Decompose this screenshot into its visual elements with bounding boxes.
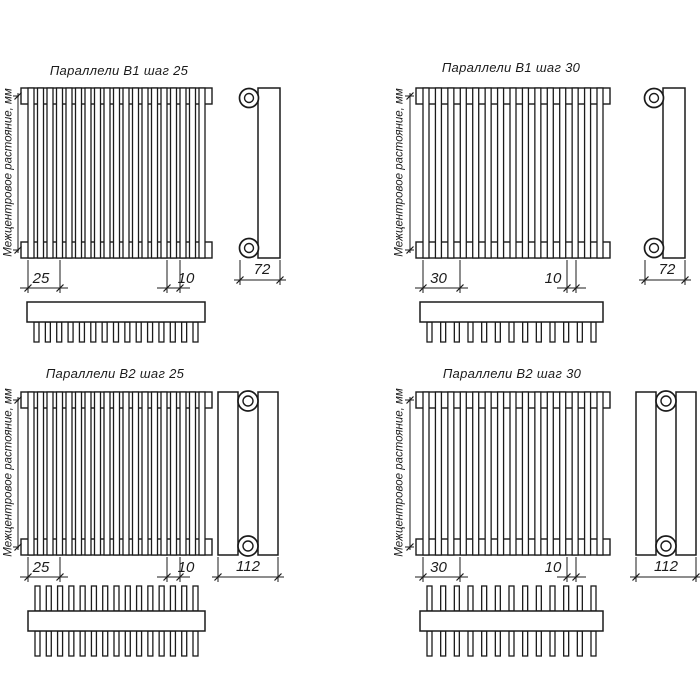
depth-dimension: 72 [639, 260, 691, 285]
quadrant-b2-step-25: 2510112 [13, 391, 284, 656]
slat-width-dimension: 10 [157, 557, 195, 582]
dim-label-slat-width: 10 [545, 270, 562, 287]
top-view [28, 586, 205, 656]
dim-label-depth: 112 [236, 558, 261, 575]
dim-label-depth: 112 [654, 558, 679, 575]
center-distance-label-b1-step-25: Межцентровое растояние, мм [2, 87, 17, 259]
top-view [420, 302, 603, 342]
step-dimension: 25 [20, 260, 68, 293]
top-view [420, 586, 603, 656]
radiator-drawings-svg: 25107230107225101123010112 [0, 0, 700, 700]
center-distance-label-b2-step-25: Межцентровое растояние, мм [2, 387, 17, 559]
dim-label-step: 30 [430, 559, 447, 576]
slat-width-dimension: 10 [545, 557, 586, 582]
dim-label-slat-width: 10 [545, 559, 562, 576]
side-view [636, 391, 696, 556]
step-dimension: 25 [20, 557, 68, 582]
dim-label-step: 25 [32, 270, 50, 287]
depth-dimension: 112 [630, 557, 700, 582]
quadrant-title-b2-step-25: Параллели В2 шаг 25 [27, 366, 203, 381]
dim-label-step: 30 [430, 270, 447, 287]
depth-dimension: 72 [234, 260, 286, 285]
front-view [416, 392, 610, 555]
quadrant-title-b2-step-30: Параллели В2 шаг 30 [424, 366, 600, 381]
quadrant-b1-step-25: 251072 [13, 88, 286, 342]
front-view [21, 88, 212, 258]
dim-label-step: 25 [32, 559, 50, 576]
quadrant-b1-step-30: 301072 [405, 88, 691, 342]
dim-label-slat-width: 10 [178, 559, 195, 576]
top-view [27, 302, 205, 342]
slat-width-dimension: 10 [157, 260, 195, 293]
dim-label-slat-width: 10 [178, 270, 195, 287]
side-view [218, 391, 278, 556]
quadrant-title-b1-step-30: Параллели В1 шаг 30 [423, 60, 599, 75]
dim-label-depth: 72 [254, 261, 271, 278]
dim-label-depth: 72 [659, 261, 676, 278]
quadrant-b2-step-30: 3010112 [405, 391, 700, 656]
center-distance-label-b2-step-30: Межцентровое растояние, мм [393, 387, 408, 559]
depth-dimension: 112 [212, 557, 284, 582]
quadrant-title-b1-step-25: Параллели В1 шаг 25 [31, 63, 207, 78]
side-view [645, 88, 686, 258]
side-view [240, 88, 281, 258]
front-view [416, 88, 610, 258]
step-dimension: 30 [415, 557, 468, 582]
slat-width-dimension: 10 [545, 260, 586, 293]
center-distance-label-b1-step-30: Межцентровое растояние, мм [393, 87, 408, 259]
front-view [21, 392, 212, 555]
drawing-canvas: 25107230107225101123010112 Параллели В1 … [0, 0, 700, 700]
step-dimension: 30 [415, 260, 468, 293]
